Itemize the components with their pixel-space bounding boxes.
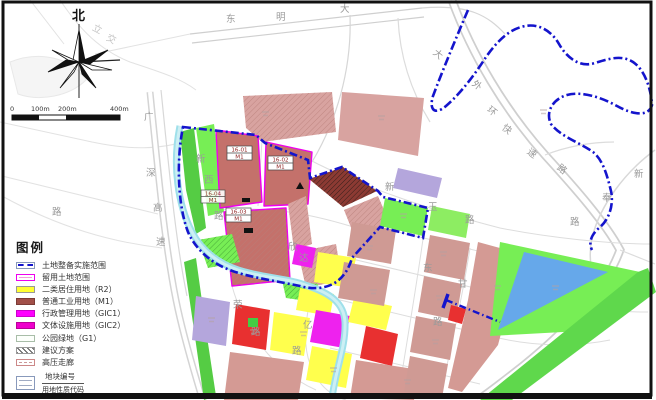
plot-pale-a2 [338, 92, 424, 156]
plot-code-sample-top: 地块编号 [42, 371, 84, 384]
road-label: 外 [470, 78, 485, 94]
road-label: 新 [385, 181, 395, 193]
road-label: 交 [104, 32, 118, 47]
road-label: 大 [431, 47, 446, 63]
road-label: 路 [433, 316, 443, 328]
legend-item-proposal: 建议方案 [16, 346, 174, 354]
road-label: 立 [90, 22, 104, 37]
road-label: 新 [196, 153, 206, 165]
plot-label-16-01: 16-01 M1 [227, 146, 252, 161]
road-label: 玉 [428, 202, 438, 213]
plot-code: M1 [276, 165, 285, 171]
scale-tick: 400m [110, 105, 129, 113]
plot-lavender-north [393, 168, 442, 198]
background-roads [0, 0, 196, 248]
road-label: 路 [292, 345, 302, 357]
road-label: 亿 [303, 319, 313, 331]
scale-tick: 100m [31, 105, 50, 113]
plot-east-2 [338, 262, 390, 306]
plot-code-sample-bottom: 用地性质代码 [42, 384, 84, 395]
legend-label: 文体设施用地（GIC2） [42, 320, 125, 331]
plot-code: M1 [209, 198, 218, 204]
plot-yellow-1 [270, 312, 310, 356]
road-label: 路 [465, 214, 475, 226]
legend: 图例 土地整备实施范围 留用土地范围 二类居住用地（R2） 普通工业用地（M1）… [16, 237, 174, 395]
legend-item-park-g1: 公园绿地（G1） [16, 334, 174, 342]
legend-label: 行政管理用地（GIC1） [42, 308, 125, 319]
plot-salmon-1 [224, 352, 304, 400]
plot-id: 16-04 [205, 191, 222, 197]
road-label: 西 [204, 175, 214, 186]
road-label: 路 [52, 206, 62, 218]
plot-label-16-03: 16-03 M1 [226, 208, 251, 223]
legend-title: 图例 [16, 237, 174, 256]
legend-label: 二类居住用地（R2） [42, 284, 117, 295]
plot-id: 16-01 [231, 148, 248, 154]
road-label: 甘 [458, 278, 468, 290]
legend-item-retained-land: 留用土地范围 [16, 273, 174, 281]
retained-land-swatch [16, 274, 35, 281]
road-label: 广 [144, 111, 154, 123]
plot-16-02 [264, 142, 312, 206]
road-label: 荣 [233, 299, 243, 311]
road-label: 高 [153, 202, 163, 214]
legend-item-implementation-scope: 土地整备实施范围 [16, 261, 174, 269]
road-label: 大 [340, 3, 350, 15]
zoning-plots [180, 92, 656, 400]
road-label: 东 [423, 262, 433, 274]
road-label: 深 [146, 168, 156, 179]
legend-item-admin-gic1: 行政管理用地（GIC1） [16, 310, 174, 318]
road-label: 达 [299, 252, 309, 264]
road-label: 环 [485, 104, 499, 119]
legend-item-hv-corridor: 高压走廊 [16, 359, 174, 367]
implementation-scope-swatch [16, 262, 35, 269]
legend-label: 普通工业用地（M1） [42, 296, 118, 307]
road-label: 路 [214, 210, 224, 222]
plot-code: M1 [235, 155, 244, 161]
plot-red-2 [360, 326, 398, 366]
legend-label: 高压走廊 [42, 357, 74, 368]
road-label: 明 [276, 12, 286, 23]
plot-id: 16-03 [230, 210, 247, 216]
legend-label: 建议方案 [42, 345, 74, 356]
road-label: 路 [251, 326, 261, 338]
road-label: 快 [500, 122, 515, 138]
road-label: 奉 [602, 192, 612, 204]
legend-label: 公园绿地（G1） [42, 333, 101, 344]
park-g1-swatch [16, 335, 35, 342]
plot-code: M1 [234, 217, 243, 223]
legend-label: 留用土地范围 [42, 272, 90, 283]
road-label: 路 [570, 216, 580, 228]
legend-item-culture-gic2: 文体设施用地（GIC2） [16, 322, 174, 330]
plot-green-square [248, 318, 258, 327]
legend-item-residential-r2: 二类居住用地（R2） [16, 285, 174, 293]
scale-tick: 200m [58, 105, 77, 113]
industrial-m1-swatch [16, 298, 35, 305]
road-label: 新 [634, 168, 644, 180]
proposal-swatch [16, 347, 35, 354]
legend-item-industrial-m1: 普通工业用地（M1） [16, 298, 174, 306]
admin-gic1-swatch [16, 310, 35, 317]
plot-id: 16-02 [272, 158, 288, 164]
plot-code-sample-swatch [16, 376, 35, 390]
culture-gic2-swatch [16, 322, 35, 329]
north-label: 北 [72, 9, 85, 24]
legend-label: 土地整备实施范围 [42, 260, 106, 271]
scale-tick: 0 [10, 105, 14, 113]
plot-label-16-02: 16-02 M1 [268, 156, 293, 171]
plot-east-s4 [404, 356, 448, 398]
residential-r2-swatch [16, 286, 35, 293]
plot-label-16-04: 16-04 M1 [201, 190, 225, 204]
scale-bar: 0 100m 200m 400m [10, 105, 129, 120]
road-label: 东 [226, 13, 236, 25]
planning-map-image: 东 明 大 大 外 环 快 速 路 新 奉 路 广 深 高 速 新 西 路 欣 … [0, 0, 656, 400]
legend-item-plot-code-sample: 地块编号 用地性质代码 [16, 371, 174, 395]
hv-corridor-swatch [16, 359, 35, 366]
road-label: 欣 [288, 241, 298, 253]
